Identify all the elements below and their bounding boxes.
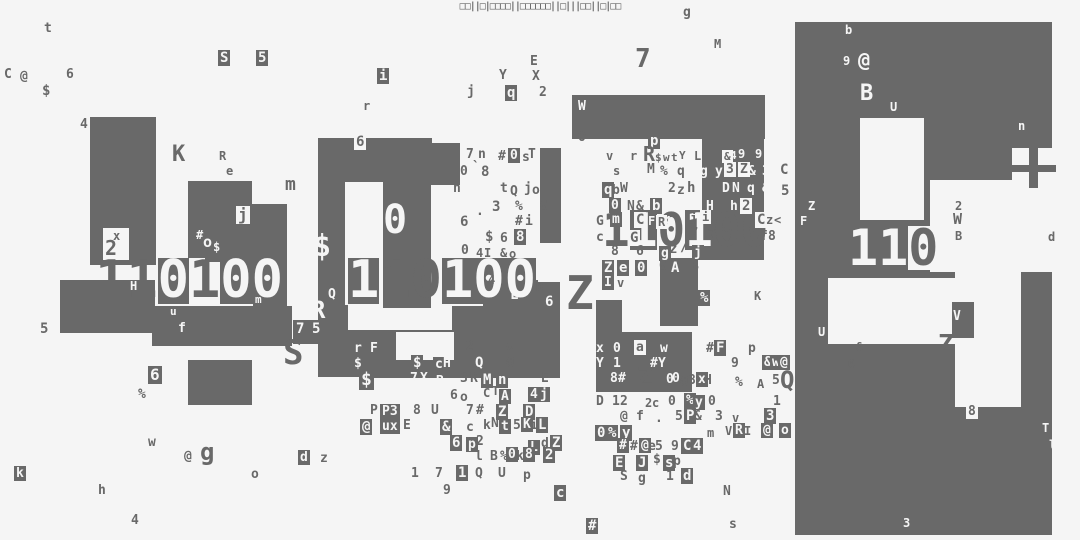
noise-glyph: B [860, 83, 873, 105]
noise-glyph: Y [499, 69, 507, 82]
noise-glyph: C [483, 387, 490, 399]
noise-glyph: d [681, 468, 693, 484]
block-rect [828, 278, 956, 344]
noise-glyph: X [532, 70, 540, 83]
noise-glyph: A [669, 260, 681, 276]
noise-glyph: Q [780, 368, 794, 392]
noise-glyph: 4 [691, 438, 703, 454]
noise-glyph: 4 [476, 247, 483, 259]
code-digit: 0 [220, 258, 251, 304]
noise-glyph: N [491, 417, 499, 430]
noise-glyph: F [714, 340, 726, 356]
block-rect [860, 118, 924, 220]
noise-glyph: % [660, 165, 668, 178]
noise-glyph: w [148, 436, 156, 449]
noise-glyph: $ [313, 232, 331, 262]
noise-glyph: 0 [508, 148, 520, 163]
noise-glyph: d [1048, 231, 1055, 243]
noise-glyph: 9 [731, 357, 739, 370]
noise-glyph: d [298, 450, 310, 465]
noise-glyph: R [470, 372, 478, 385]
noise-glyph: W [578, 100, 586, 113]
noise-glyph: # [476, 404, 484, 417]
noise-glyph: Z [566, 270, 594, 316]
noise-glyph: 1 [411, 467, 419, 480]
noise-glyph: g [683, 6, 691, 19]
block-rect [1029, 148, 1038, 188]
noise-glyph: @ [680, 374, 688, 387]
noise-glyph: Y [679, 150, 686, 161]
block-rect [1022, 287, 1052, 311]
noise-glyph: 1 [772, 200, 779, 212]
noise-glyph: & [762, 182, 770, 195]
noise-glyph: P3 [380, 404, 400, 419]
noise-glyph: H [704, 374, 712, 387]
code-digit: 1 [878, 226, 908, 270]
noise-glyph: q [505, 85, 517, 101]
noise-glyph: # [586, 518, 598, 534]
code-digit: 0 [713, 210, 741, 250]
noise-glyph: H [130, 280, 137, 292]
noise-glyph: T [1042, 422, 1049, 434]
noise-glyph: m [610, 212, 622, 227]
noise-glyph: # [618, 372, 626, 385]
noise-glyph: 6 [458, 214, 470, 230]
code-digit: 1 [379, 258, 410, 304]
noise-glyph: 3 [764, 408, 776, 424]
noise-glyph: V [953, 310, 961, 323]
noise-glyph: 9 [443, 484, 451, 497]
noise-glyph: & [500, 247, 507, 259]
noise-glyph: O [578, 131, 586, 144]
noise-glyph: r [630, 150, 637, 162]
captcha-code: 110100 [348, 258, 536, 304]
noise-glyph: ux [380, 419, 400, 434]
noise-glyph: 9 [738, 148, 745, 160]
noise-glyph: Y [596, 357, 604, 370]
noise-glyph: C [634, 212, 646, 228]
noise-glyph: 8 [610, 372, 618, 385]
noise-glyph: e [617, 260, 629, 276]
noise-glyph: S [620, 470, 628, 483]
noise-glyph: j [692, 245, 704, 260]
noise-glyph: 7 [691, 226, 698, 238]
noise-glyph: 1 [612, 395, 620, 408]
noise-glyph: K [754, 290, 761, 302]
noise-glyph: 0 [848, 358, 855, 370]
noise-glyph: c [466, 421, 474, 434]
noise-glyph: @ [360, 419, 372, 435]
noise-glyph: 5 [40, 322, 48, 336]
captcha-code: 110100 [848, 226, 1029, 270]
noise-glyph: b [612, 184, 620, 197]
code-digit: 0 [411, 258, 442, 304]
noise-glyph: V [725, 425, 732, 437]
noise-glyph: 0 [672, 372, 680, 385]
noise-glyph: 2 [620, 395, 628, 408]
noise-glyph: o [203, 235, 212, 250]
noise-glyph: Y [658, 357, 666, 370]
block-rect [430, 143, 460, 185]
noise-glyph: J [636, 455, 648, 471]
noise-glyph: 5 [256, 50, 268, 66]
noise-glyph: U [818, 326, 825, 338]
noise-glyph: 5 [312, 322, 320, 336]
noise-glyph: h [730, 200, 738, 213]
noise-glyph: I [744, 425, 751, 437]
noise-glyph: 3 [903, 517, 910, 529]
noise-glyph: c [554, 485, 566, 501]
noise-glyph: p [523, 469, 531, 482]
noise-glyph: 5 [513, 419, 521, 432]
noise-glyph: z [320, 452, 328, 465]
code-digit: 1 [348, 258, 379, 304]
noise-glyph: 3 [762, 165, 770, 178]
noise-glyph: 0 [609, 198, 621, 213]
noise-glyph: j [690, 212, 697, 224]
noise-glyph: % [770, 182, 778, 195]
noise-glyph: 8 [479, 164, 491, 180]
noise-glyph: # [630, 440, 638, 453]
noise-glyph: j [538, 387, 550, 402]
noise-glyph: W [620, 182, 628, 195]
noise-glyph: % [698, 290, 710, 306]
noise-glyph: 1 [773, 395, 781, 408]
noise-glyph: 3 [443, 246, 451, 260]
noise-glyph: 6 [148, 366, 162, 384]
noise-glyph: 7 [635, 46, 651, 72]
code-digit: 1 [189, 258, 220, 304]
noise-glyph: t [499, 419, 511, 434]
noise-glyph: X [532, 245, 539, 257]
noise-glyph: L [536, 417, 548, 433]
captcha-canvas: □□||□|□□□□||□□□□□□||□|||□□||□|□□ 1101001… [0, 0, 1080, 540]
code-digit: 0 [158, 258, 189, 304]
noise-glyph: q [747, 182, 755, 195]
noise-glyph: I [602, 275, 614, 290]
noise-glyph: U [498, 467, 506, 480]
noise-glyph: t [671, 152, 678, 163]
noise-glyph: % [735, 376, 743, 389]
noise-glyph: 0 [635, 260, 647, 276]
noise-glyph: & [440, 419, 452, 435]
noise-glyph: t [44, 22, 52, 35]
noise-glyph: h [98, 484, 106, 497]
noise-glyph: 8 [413, 404, 421, 417]
noise-glyph: F [648, 215, 655, 227]
noise-glyph: 2 [476, 435, 484, 448]
noise-glyph: E [530, 55, 538, 68]
noise-glyph: 6 [543, 294, 555, 310]
noise-glyph: 8 [688, 374, 696, 387]
noise-glyph: i [377, 68, 389, 84]
noise-glyph: X [386, 389, 394, 402]
noise-glyph: & [748, 165, 756, 178]
noise-glyph: 6 [450, 435, 462, 451]
noise-glyph: & [694, 410, 702, 423]
noise-glyph: S [218, 50, 230, 66]
noise-glyph: x [596, 342, 604, 355]
noise-glyph: $ [359, 370, 374, 390]
noise-glyph: 7 [708, 229, 716, 242]
code-digit: 0 [999, 226, 1029, 270]
noise-glyph: B [955, 230, 962, 242]
noise-glyph: w [506, 340, 514, 353]
noise-glyph: G [596, 215, 604, 228]
noise-glyph: z [677, 184, 685, 197]
noise-glyph: 0 [668, 395, 676, 408]
noise-glyph: v [606, 150, 613, 162]
noise-glyph: $ [213, 241, 220, 253]
noise-glyph: Z [602, 260, 614, 276]
noise-glyph: Q [473, 355, 485, 371]
noise-glyph: U [523, 245, 530, 257]
noise-glyph: $ [411, 355, 423, 371]
noise-glyph: 0 [460, 165, 468, 178]
noise-glyph: t [500, 182, 508, 195]
noise-glyph: @ [184, 450, 192, 463]
noise-glyph: r [363, 100, 370, 112]
noise-glyph: f [636, 410, 644, 423]
noise-glyph: m [285, 176, 296, 194]
noise-glyph: Z [637, 365, 653, 391]
noise-glyph: / [680, 240, 688, 254]
noise-glyph: N [723, 485, 731, 498]
noise-glyph: 9 [671, 440, 679, 453]
noise-glyph: o [251, 468, 259, 481]
noise-glyph: 6 [450, 389, 458, 402]
noise-glyph: @ [761, 423, 773, 438]
noise-glyph: s [613, 165, 620, 177]
code-digit: 1 [95, 258, 126, 304]
noise-glyph: 1 [456, 465, 468, 481]
noise-glyph: o [779, 423, 791, 438]
noise-glyph: m [707, 427, 714, 439]
noise-glyph: p [673, 455, 681, 468]
noise-glyph: e [226, 165, 233, 177]
noise-glyph: B [691, 260, 699, 273]
noise-glyph: 8 [768, 230, 776, 243]
noise-glyph: # [706, 342, 714, 355]
noise-glyph: f [760, 230, 768, 243]
noise-glyph: c [596, 231, 604, 244]
noise-glyph: o [509, 248, 516, 260]
noise-glyph: o [532, 184, 540, 197]
noise-glyph: $ [653, 453, 661, 466]
noise-glyph: L [510, 288, 518, 302]
noise-glyph: k [14, 466, 26, 481]
noise-glyph: D [596, 395, 604, 408]
noise-glyph: j [236, 206, 250, 224]
noise-glyph: E [541, 372, 549, 385]
code-digit: 1 [938, 226, 968, 270]
noise-glyph: 0 [461, 244, 469, 257]
noise-glyph: 4 [131, 514, 139, 527]
noise-glyph: 1 [666, 470, 674, 483]
noise-glyph: < [774, 214, 781, 226]
noise-glyph: v [617, 277, 624, 289]
noise-glyph: U [890, 101, 897, 113]
noise-glyph: 9 [843, 55, 850, 67]
barcode-title: □□||□|□□□□||□□□□□□||□|||□□||□|□□ [460, 1, 621, 12]
noise-glyph: 0 [383, 200, 407, 240]
noise-glyph: 7 [410, 372, 418, 385]
noise-glyph: U [668, 423, 676, 436]
noise-glyph: l [475, 450, 483, 463]
noise-glyph: n [1018, 120, 1025, 132]
noise-glyph: C [778, 162, 790, 178]
noise-glyph: Z [938, 332, 954, 358]
noise-glyph: z [766, 214, 773, 226]
noise-glyph: M [714, 38, 721, 50]
noise-glyph: Q [328, 288, 336, 301]
noise-glyph: 2 [105, 238, 117, 258]
noise-glyph: 8 [611, 245, 619, 258]
noise-glyph: W [953, 212, 962, 227]
noise-glyph: $ [483, 229, 495, 245]
noise-glyph: @ [620, 410, 628, 423]
noise-glyph: l [1049, 439, 1056, 451]
noise-glyph: b [535, 280, 543, 294]
noise-glyph: R [643, 144, 655, 164]
noise-glyph: g [200, 440, 214, 464]
noise-glyph: & [856, 341, 863, 353]
noise-glyph: g [638, 472, 646, 485]
block-rect [1003, 183, 1015, 190]
noise-glyph: M [645, 162, 657, 177]
code-digit: 0 [908, 226, 938, 270]
noise-glyph: k [483, 419, 491, 432]
noise-glyph: I [484, 247, 491, 259]
block-rect [540, 148, 561, 243]
noise-glyph: u [170, 306, 177, 317]
noise-glyph: # [515, 215, 523, 228]
noise-glyph: q [677, 165, 685, 178]
noise-glyph: E [403, 419, 411, 432]
noise-glyph: . [476, 205, 484, 218]
noise-glyph: P [370, 404, 378, 417]
noise-glyph: 6 [500, 232, 508, 245]
noise-glyph: c [652, 397, 659, 409]
noise-glyph: 4 [730, 150, 737, 161]
noise-glyph: p [748, 342, 756, 355]
noise-glyph: f [178, 322, 186, 335]
noise-glyph: 7 [435, 467, 443, 480]
noise-glyph: B [436, 375, 444, 388]
noise-glyph: j [524, 182, 532, 195]
code-digit: 1 [442, 258, 473, 304]
noise-glyph: A [499, 389, 511, 404]
noise-glyph: H [443, 357, 451, 370]
noise-glyph: 8 [966, 404, 978, 419]
noise-glyph: 2 [539, 86, 547, 99]
noise-glyph: % [515, 200, 523, 213]
noise-glyph: 9 [755, 148, 762, 160]
noise-glyph: K [172, 144, 185, 166]
noise-glyph: i [525, 215, 533, 228]
noise-glyph: R [219, 150, 226, 162]
noise-glyph: 1 [613, 357, 621, 370]
noise-glyph: 8 [514, 229, 526, 245]
block-rect [572, 95, 765, 139]
noise-glyph: 5 [772, 374, 780, 387]
code-digit: 0 [968, 226, 998, 270]
noise-glyph: W [418, 342, 426, 355]
noise-glyph: T [528, 148, 536, 161]
noise-glyph: 1 [772, 148, 779, 160]
noise-glyph: s [729, 518, 737, 531]
noise-glyph: F [370, 342, 378, 355]
noise-glyph: w [663, 152, 670, 163]
noise-glyph: % [138, 388, 146, 401]
noise-glyph: b [845, 24, 852, 36]
noise-glyph: 6 [636, 245, 644, 258]
noise-glyph: B [490, 450, 498, 463]
noise-glyph: A [757, 378, 764, 390]
noise-glyph: 7 [466, 404, 474, 417]
noise-glyph: 3 [724, 162, 736, 177]
noise-glyph: L [694, 150, 701, 162]
noise-glyph: b [650, 198, 662, 214]
noise-glyph: w [660, 342, 668, 355]
noise-glyph: # [498, 150, 506, 163]
noise-glyph: n [453, 182, 461, 195]
noise-glyph: Q [508, 184, 520, 199]
noise-glyph: 3 [715, 410, 723, 423]
noise-glyph: . [655, 412, 663, 425]
noise-glyph: @ [506, 355, 514, 368]
noise-glyph: S [283, 336, 303, 370]
noise-glyph: 6 [354, 134, 366, 150]
noise-glyph: X [420, 372, 428, 385]
noise-glyph: 6 [66, 68, 74, 81]
noise-glyph: G [540, 200, 548, 213]
noise-glyph: 5 [779, 183, 791, 199]
noise-glyph: z [669, 242, 677, 256]
noise-glyph: 0 [613, 342, 621, 355]
noise-glyph: 4 [80, 118, 88, 131]
noise-glyph: # [617, 438, 629, 453]
noise-glyph: 3 [492, 200, 500, 214]
noise-glyph: D [722, 182, 730, 195]
block-rect [188, 360, 252, 405]
noise-glyph: 2 [466, 340, 474, 353]
noise-glyph: r [354, 342, 362, 355]
noise-glyph: 4 [664, 215, 671, 227]
noise-glyph: m [255, 294, 262, 305]
noise-glyph: 8 [523, 447, 535, 462]
noise-glyph: 0 [358, 308, 366, 321]
noise-glyph: @ [20, 70, 28, 83]
noise-glyph: F [800, 215, 807, 227]
noise-glyph: y [715, 165, 723, 178]
noise-glyph: $ [42, 84, 50, 98]
noise-glyph: 2 [668, 182, 676, 195]
noise-glyph: 4 [488, 274, 495, 286]
noise-glyph: N [732, 182, 740, 195]
noise-glyph: a [634, 340, 646, 355]
noise-glyph: 0 [708, 395, 716, 408]
noise-glyph: h [685, 180, 697, 196]
noise-glyph: U [431, 404, 439, 417]
noise-glyph: j [467, 85, 475, 98]
noise-glyph: Q [475, 467, 483, 480]
noise-glyph: U [601, 290, 609, 303]
noise-glyph: @ [858, 50, 870, 70]
noise-glyph: g [700, 165, 708, 178]
code-digit: 1 [848, 226, 878, 270]
noise-glyph: Z [808, 200, 815, 212]
